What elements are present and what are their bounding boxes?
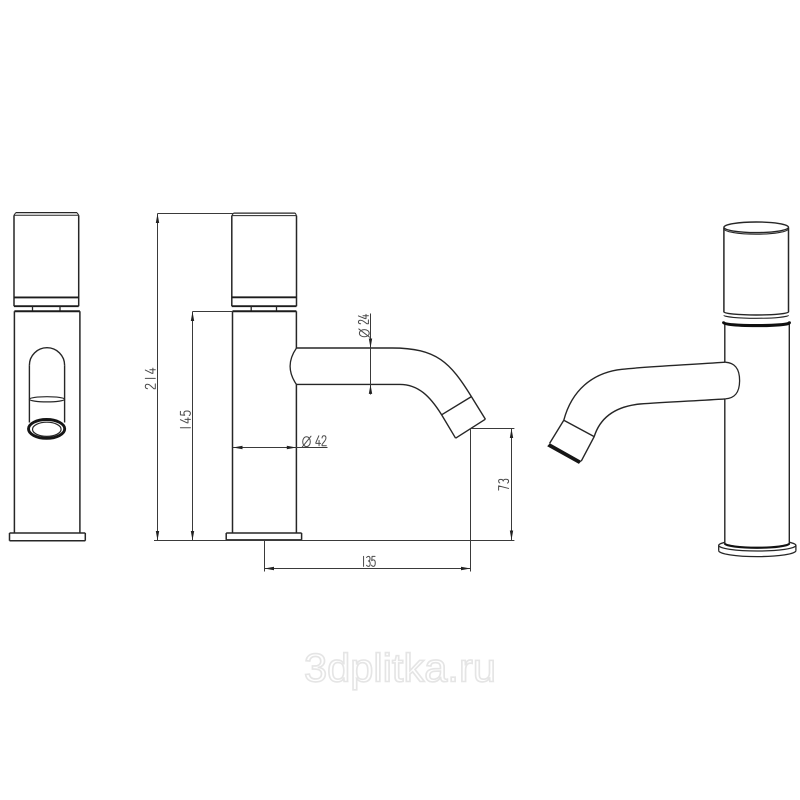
svg-text:3dplitka.ru: 3dplitka.ru (304, 646, 496, 690)
